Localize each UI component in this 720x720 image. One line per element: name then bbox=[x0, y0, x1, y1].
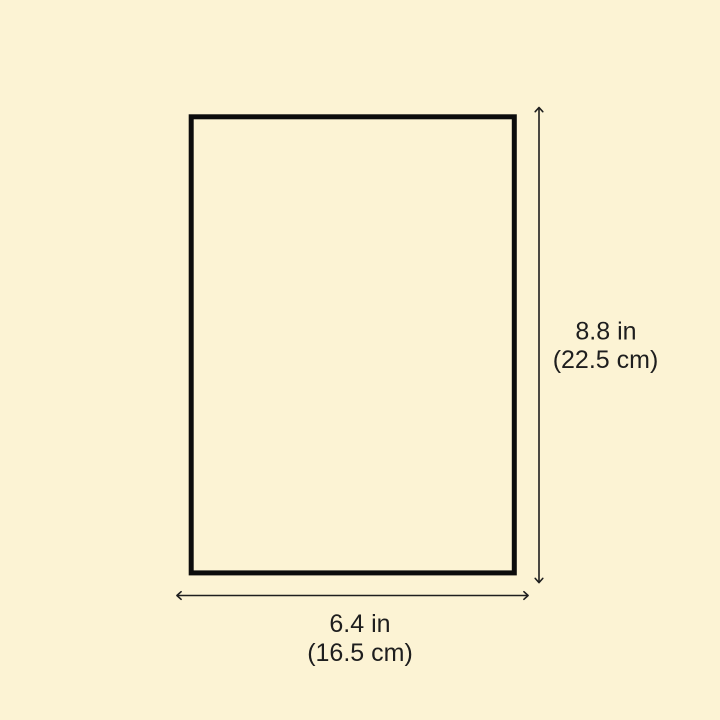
svg-text:(22.5 cm): (22.5 cm) bbox=[553, 346, 659, 374]
svg-text:(16.5 cm): (16.5 cm) bbox=[307, 639, 413, 667]
svg-text:8.8 in: 8.8 in bbox=[575, 318, 636, 346]
svg-text:6.4 in: 6.4 in bbox=[329, 610, 390, 638]
